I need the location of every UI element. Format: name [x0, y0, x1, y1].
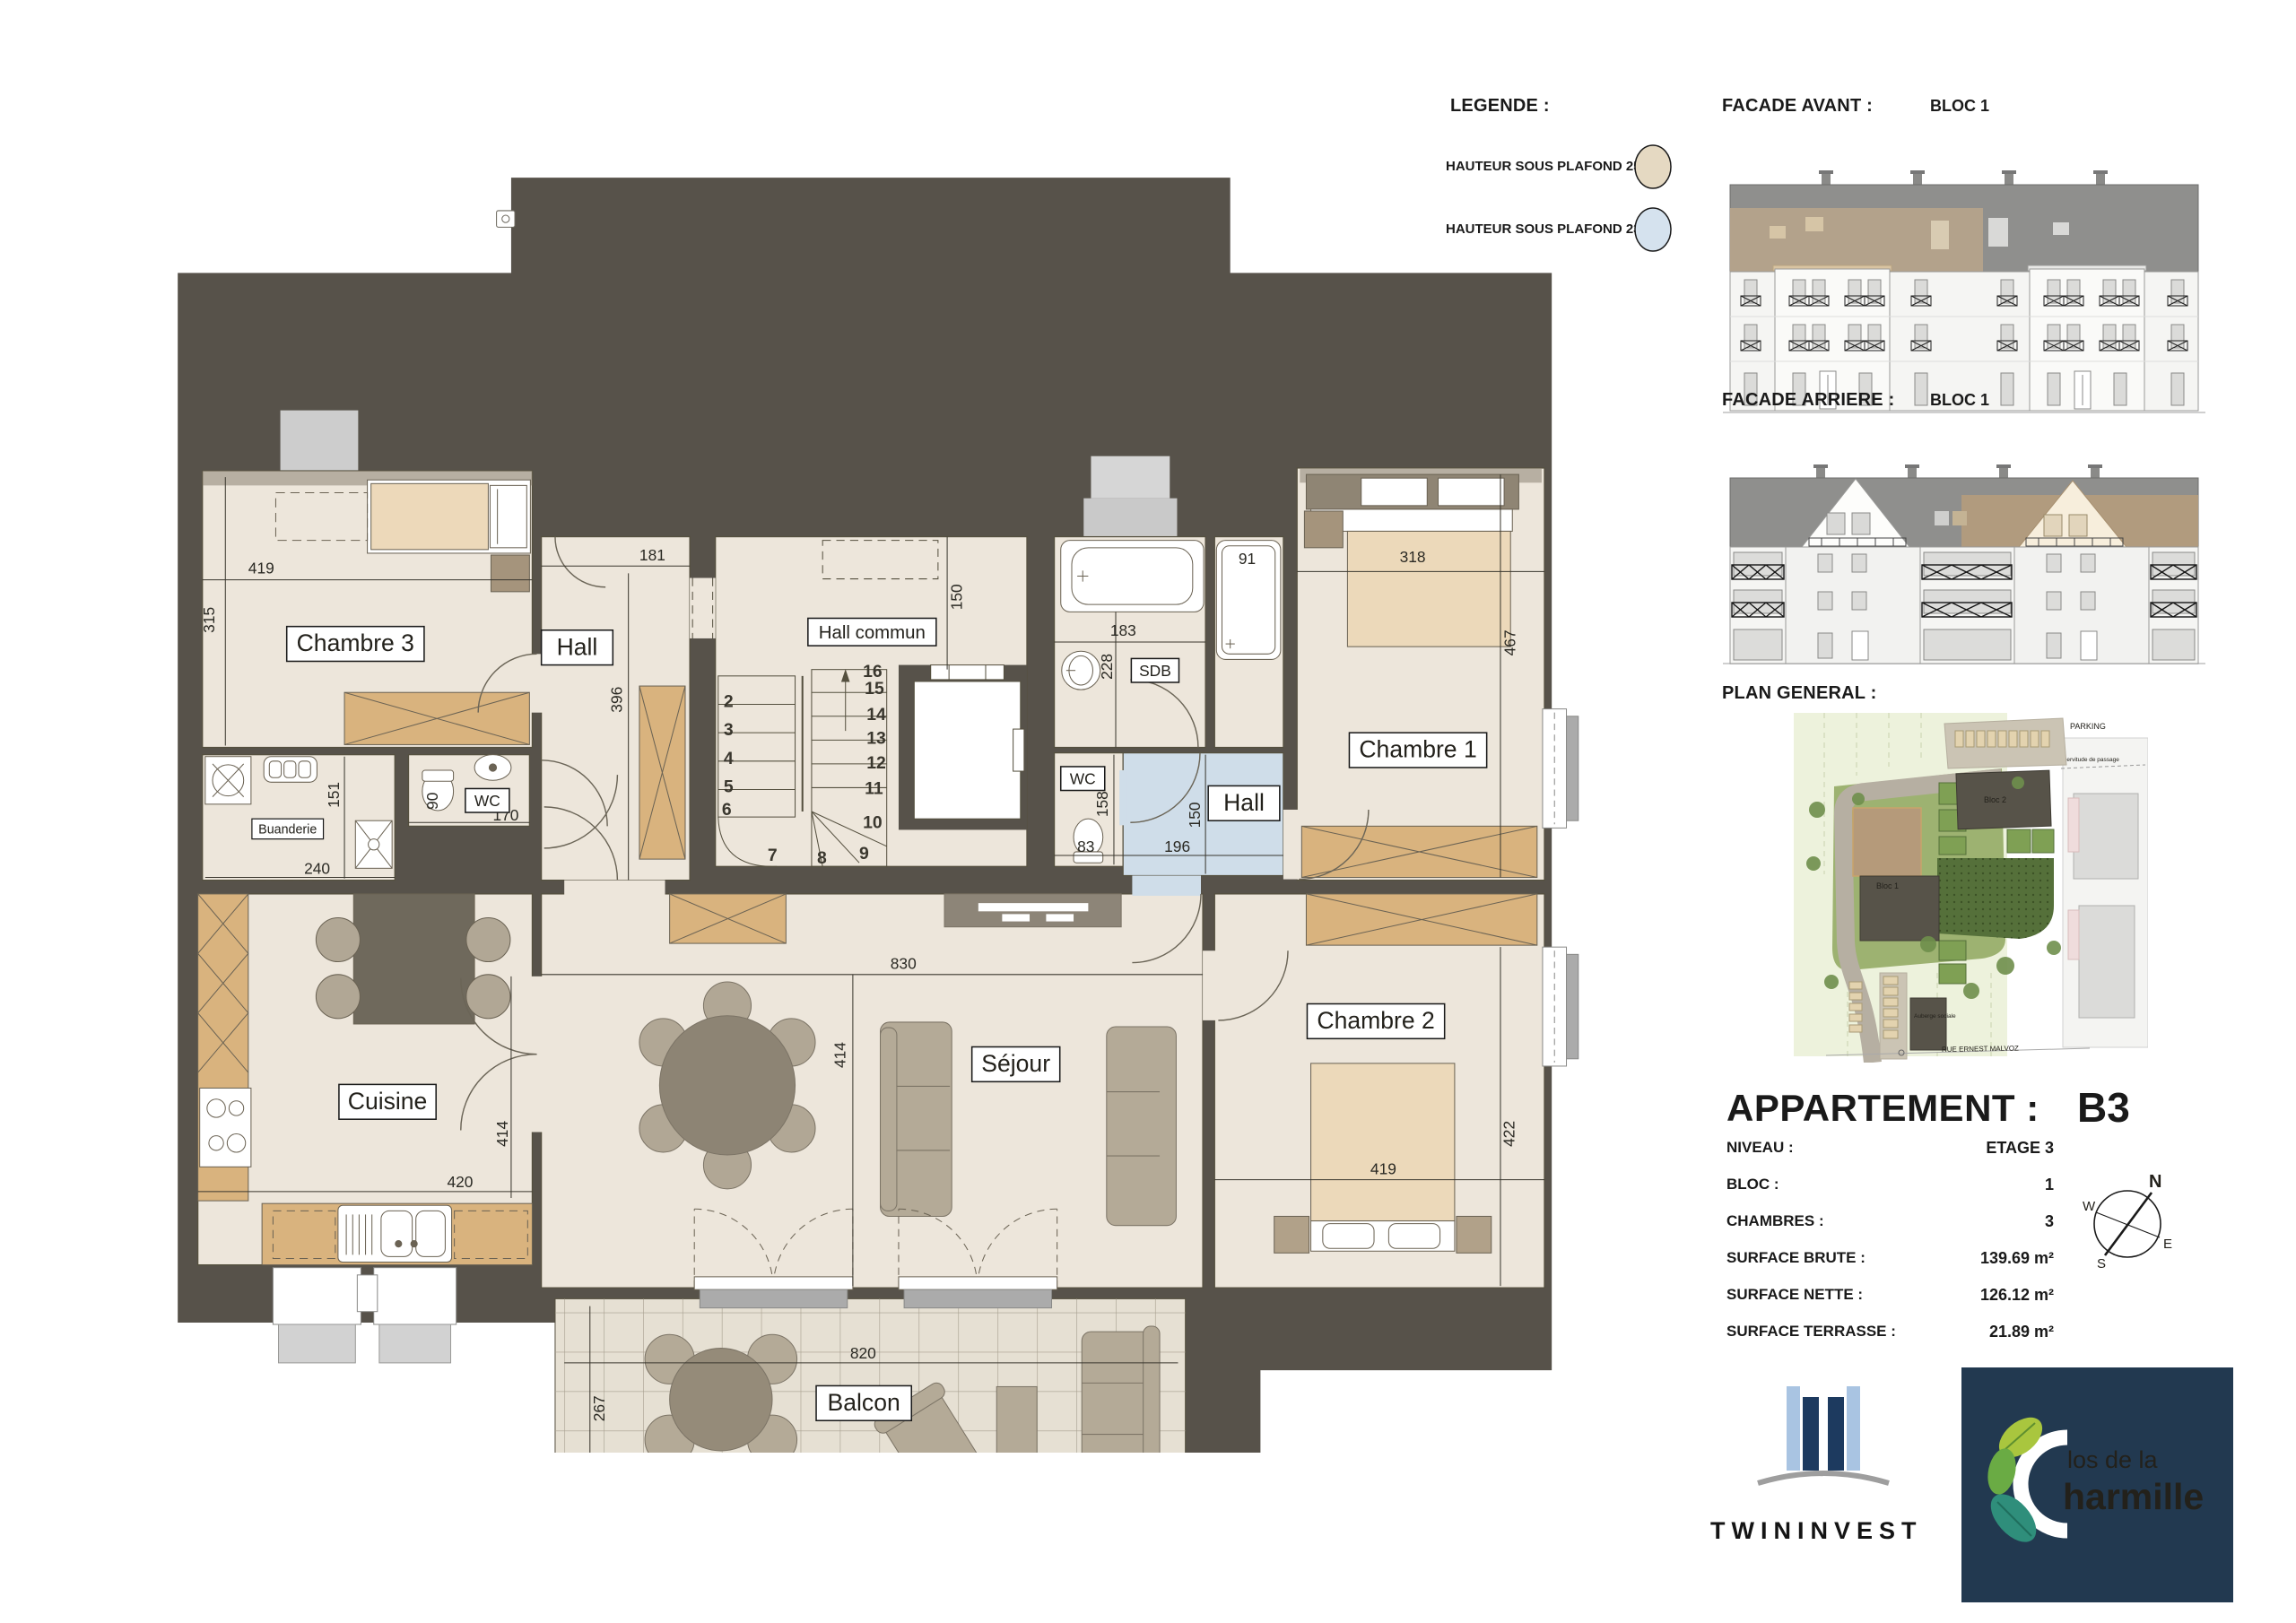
- chimney-left: [281, 411, 359, 471]
- plan-general-map: PARKING Servitude de passage Bloc 2: [1794, 713, 2148, 1063]
- map-bloc1: Bloc 1: [1860, 876, 1939, 941]
- label-hall-commun: Hall commun: [819, 623, 926, 643]
- compass-e: E: [2163, 1237, 2172, 1252]
- compass-w: W: [2083, 1199, 2096, 1214]
- info-value: 3: [2045, 1212, 2054, 1231]
- svg-text:5: 5: [724, 777, 734, 797]
- info-label: NIVEAU :: [1726, 1139, 1794, 1156]
- svg-text:Bloc 2: Bloc 2: [1984, 795, 2006, 804]
- svg-text:318: 318: [1400, 548, 1426, 566]
- facade-arriere-roof: [1730, 464, 2198, 551]
- elevator: [899, 665, 1027, 830]
- label-sejour: Séjour: [981, 1050, 1050, 1077]
- chimney-center: [1083, 456, 1177, 539]
- svg-text:181: 181: [639, 546, 665, 564]
- facade-arriere-drawing: [1723, 464, 2205, 671]
- svg-text:267: 267: [590, 1395, 608, 1421]
- svg-text:90: 90: [423, 793, 441, 810]
- svg-text:91: 91: [1239, 550, 1256, 568]
- map-parking-top: [1944, 718, 2066, 768]
- facade-avant-bloc: BLOC 1: [1930, 97, 1989, 116]
- map-right-parcels: [2063, 738, 2148, 1047]
- plan-sheet: 2 3 4 5 6 7 8 9 10 11 12 13 14 15 16: [0, 0, 2296, 1623]
- svg-text:419: 419: [248, 559, 274, 577]
- info-label: CHAMBRES :: [1726, 1212, 1824, 1229]
- info-label: SURFACE NETTE :: [1726, 1286, 1863, 1303]
- label-buanderie: Buanderie: [258, 823, 317, 838]
- hall-wardrobe: [639, 686, 685, 859]
- info-value: 21.89 m²: [1989, 1323, 2054, 1341]
- info-row-surface-nette: SURFACE NETTE : 126.12 m²: [1726, 1286, 2054, 1313]
- info-row-surface-terrasse: SURFACE TERRASSE : 21.89 m²: [1726, 1323, 2054, 1350]
- legend-swatches: [1628, 142, 1682, 258]
- svg-text:150: 150: [1186, 802, 1204, 828]
- info-label: SURFACE TERRASSE :: [1726, 1323, 1896, 1340]
- label-balcon: Balcon: [828, 1389, 900, 1416]
- svg-text:16: 16: [863, 662, 883, 681]
- apartment-code: B3: [2077, 1083, 2130, 1132]
- compass-n: N: [2149, 1172, 2161, 1192]
- charmille-logo-art: los de la harmille: [1961, 1367, 2233, 1602]
- svg-text:3: 3: [724, 720, 734, 740]
- compass: N W S E: [2072, 1166, 2184, 1278]
- twininvest-logo-mark: [1740, 1381, 1910, 1488]
- svg-text:12: 12: [866, 753, 886, 773]
- svg-text:4: 4: [724, 749, 734, 768]
- svg-text:151: 151: [325, 782, 343, 808]
- info-value: 139.69 m²: [1980, 1249, 2054, 1268]
- svg-text:422: 422: [1500, 1121, 1518, 1147]
- svg-text:13: 13: [866, 728, 886, 748]
- map-street-label: RUE ERNEST MALVOZ: [1942, 1044, 2019, 1054]
- info-label: SURFACE BRUTE :: [1726, 1249, 1865, 1266]
- info-row-surface-brute: SURFACE BRUTE : 139.69 m²: [1726, 1249, 2054, 1276]
- svg-text:9: 9: [859, 844, 869, 864]
- roof-marker: [497, 211, 515, 227]
- label-chambre1: Chambre 1: [1359, 736, 1476, 763]
- svg-text:315: 315: [200, 607, 218, 633]
- svg-text:7: 7: [768, 846, 778, 865]
- charmille-line2: harmille: [2063, 1476, 2204, 1517]
- svg-text:11: 11: [865, 779, 883, 799]
- svg-text:83: 83: [1077, 838, 1094, 855]
- legend-swatch-230: [1635, 208, 1671, 251]
- map-bloc1-highlight: [1853, 808, 1921, 876]
- info-value: 126.12 m²: [1980, 1286, 2054, 1305]
- svg-text:183: 183: [1110, 621, 1136, 639]
- twininvest-logo-text: TWININVEST: [1710, 1517, 1923, 1545]
- svg-text:228: 228: [1098, 654, 1116, 680]
- label-chambre2: Chambre 2: [1317, 1007, 1434, 1034]
- label-sdb: SDB: [1139, 662, 1171, 680]
- label-cuisine: Cuisine: [348, 1088, 428, 1115]
- svg-text:Auberge sociale: Auberge sociale: [1914, 1013, 1956, 1020]
- svg-text:820: 820: [850, 1344, 876, 1362]
- legend-title: LEGENDE :: [1450, 96, 1550, 117]
- svg-text:420: 420: [447, 1173, 473, 1191]
- info-row-niveau: NIVEAU : ETAGE 3: [1726, 1139, 2054, 1166]
- svg-text:419: 419: [1370, 1159, 1396, 1177]
- facade-avant-roof: [1730, 170, 2198, 272]
- compass-s: S: [2097, 1256, 2106, 1271]
- svg-text:396: 396: [608, 687, 626, 713]
- svg-text:10: 10: [863, 812, 883, 832]
- svg-text:2: 2: [724, 692, 734, 712]
- svg-text:240: 240: [304, 859, 330, 877]
- label-chambre3: Chambre 3: [297, 629, 414, 656]
- svg-text:158: 158: [1093, 791, 1111, 817]
- facade-arriere-title: FACADE ARRIERE :: [1722, 390, 1894, 411]
- charmille-logo: los de la harmille: [1961, 1367, 2233, 1602]
- charmille-line1: los de la: [2067, 1446, 2159, 1473]
- label-wc-top: WC: [474, 792, 500, 810]
- label-hall: Hall: [557, 633, 598, 660]
- svg-text:414: 414: [493, 1121, 511, 1147]
- svg-text:15: 15: [865, 679, 884, 699]
- map-parking-label: PARKING: [2070, 722, 2106, 731]
- info-label: BLOC :: [1726, 1176, 1779, 1193]
- svg-text:8: 8: [817, 848, 827, 868]
- svg-text:6: 6: [722, 800, 732, 820]
- map-bloc2: Bloc 2: [1956, 770, 2051, 829]
- info-row-bloc: BLOC : 1: [1726, 1176, 2054, 1202]
- apartment-title: APPARTEMENT :: [1726, 1087, 2039, 1130]
- svg-text:414: 414: [831, 1042, 849, 1068]
- label-wc-mid: WC: [1070, 769, 1096, 787]
- svg-text:467: 467: [1500, 629, 1518, 655]
- room-sejour: [542, 894, 1203, 1288]
- plan-general-title: PLAN GENERAL :: [1722, 683, 1876, 704]
- map-servitude-label: Servitude de passage: [2063, 757, 2119, 763]
- facade-avant-drawing: [1723, 169, 2205, 424]
- svg-text:196: 196: [1164, 838, 1190, 855]
- svg-text:Bloc 1: Bloc 1: [1876, 881, 1899, 890]
- info-row-chambres: CHAMBRES : 3: [1726, 1212, 2054, 1239]
- facade-arriere-bloc: BLOC 1: [1930, 391, 1989, 410]
- svg-text:830: 830: [891, 955, 917, 973]
- svg-text:14: 14: [866, 705, 886, 725]
- floorplan: 2 3 4 5 6 7 8 9 10 11 12 13 14 15 16: [170, 170, 1587, 1453]
- info-value: ETAGE 3: [1986, 1139, 2054, 1158]
- legend-swatch-250: [1635, 145, 1671, 188]
- label-hall2: Hall: [1223, 789, 1265, 816]
- svg-text:150: 150: [947, 584, 965, 610]
- facade-avant-title: FACADE AVANT :: [1722, 96, 1873, 117]
- info-value: 1: [2045, 1176, 2054, 1194]
